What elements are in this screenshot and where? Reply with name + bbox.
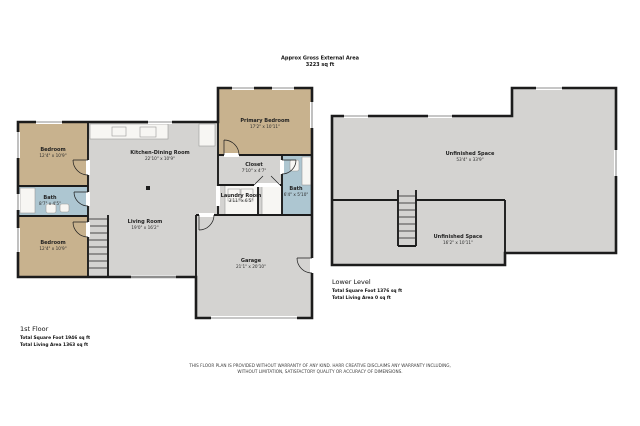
room-dims: 22'10" x 10'9" [145, 156, 175, 161]
room-dims: 7'10" x 4'7" [242, 168, 267, 173]
room-dims: 3'11" x 6'5" [229, 198, 254, 203]
disclaimer-line-1: THIS FLOOR PLAN IS PROVIDED WITHOUT WARR… [188, 363, 451, 368]
kitchen-stove [140, 127, 156, 137]
toilet [290, 160, 299, 171]
room-dims: 53'4" x 33'9" [456, 157, 483, 162]
patio-door-gap [131, 275, 176, 279]
lower-level-title: Lower Level [332, 278, 371, 286]
lower-level-square-foot: Total Square Foot 1376 sq ft [332, 288, 402, 294]
door-gap [254, 183, 280, 187]
gross-area-label: Approx Gross External Area [281, 56, 359, 62]
shower [262, 185, 282, 215]
fridge [199, 124, 215, 146]
room-dims: 16'2" x 10'11" [443, 240, 473, 245]
disclaimer: THIS FLOOR PLAN IS PROVIDED WITHOUT WARR… [188, 363, 451, 374]
lower-level-summary: Lower Level Total Square Foot 1376 sq ft… [332, 278, 402, 301]
structural-post [146, 186, 150, 190]
first-floor-living-area: Total Living Area 1363 sq ft [20, 342, 88, 348]
room-dims: 12'4" x 10'9" [39, 153, 66, 158]
room-dims: 17'2" x 10'11" [250, 124, 280, 129]
floor-plan-canvas: Approx Gross External Area 3223 sq ft [0, 0, 640, 426]
room-dims: 6'4" x 5'10" [284, 192, 309, 197]
door-gap [86, 222, 90, 237]
first-floor-summary: 1st Floor Total Square Foot 1946 sq ft T… [20, 325, 90, 348]
lower-level-living-area: Total Living Area 0 sq ft [332, 295, 391, 301]
lower-level-plan: Unfinished Space 53'4" x 33'9" Unfinishe… [332, 86, 618, 265]
first-floor-title: 1st Floor [20, 325, 49, 333]
bathtub [20, 188, 35, 213]
door-gap [216, 186, 220, 206]
door-gap [224, 153, 239, 157]
floor-plan-page: Approx Gross External Area 3223 sq ft [0, 0, 640, 426]
room-dims: 12'4" x 10'9" [39, 246, 66, 251]
room-dims: 21'1" x 20'10" [236, 264, 266, 269]
first-floor-square-foot: Total Square Foot 1946 sq ft [20, 335, 90, 341]
disclaimer-line-2: WITHOUT LIMITATION, SATISFACTORY QUALITY… [237, 369, 402, 374]
gross-area-value: 3223 sq ft [306, 62, 335, 68]
first-floor-plan: Bedroom 12'4" x 10'9" Bath 8'7" x 4'5" B… [16, 86, 314, 320]
kitchen-sink [112, 127, 126, 136]
vanity [302, 157, 311, 185]
door-gap [310, 258, 314, 273]
kitchen-counter [90, 124, 168, 139]
door-gap [86, 160, 90, 175]
door-gap [280, 160, 284, 174]
bath-sink [60, 204, 69, 212]
room-dims: 8'7" x 4'5" [39, 201, 61, 206]
door-gap [86, 192, 90, 206]
door-gap [199, 213, 214, 217]
room-dims: 19'0" x 16'2" [131, 225, 158, 230]
